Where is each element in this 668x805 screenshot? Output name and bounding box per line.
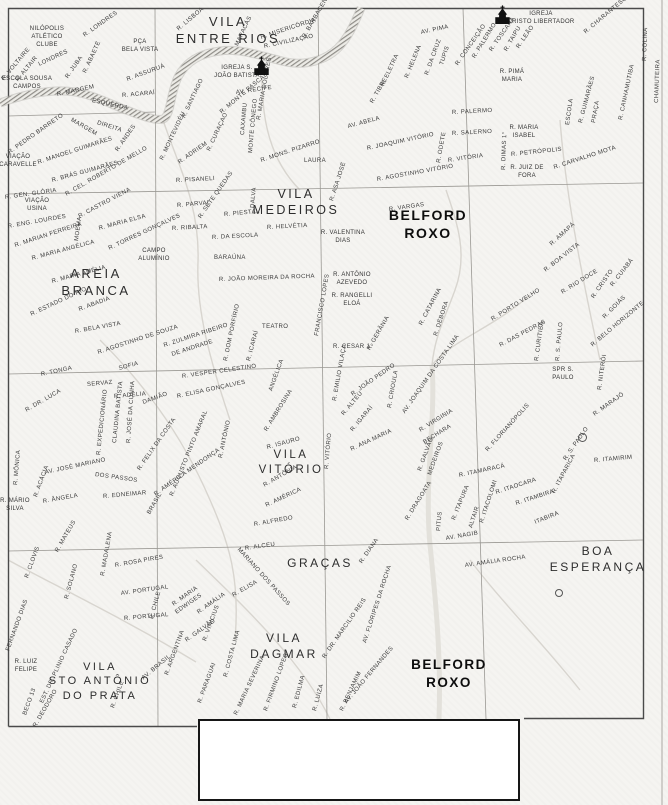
- legend-box: [198, 719, 520, 801]
- street-label: R. PISANELI: [176, 176, 215, 184]
- district-label-boa-esperanca: BOAESPERANÇA: [550, 544, 647, 575]
- map-labels-layer: VILAENTRE RIOSVILAMEDEIROSBELFORDROXOARE…: [0, 0, 668, 805]
- street-label: R. SOLANO: [64, 563, 79, 600]
- street-label: R. COSTA LIMA: [223, 629, 241, 677]
- street-label: R. DR. MARCILIO REIS: [322, 597, 368, 660]
- street-label: R. BOA VISTA: [543, 242, 581, 273]
- place-label: VIAÇÃOUSINA: [25, 197, 49, 213]
- place-label: PÇABELA VISTA: [122, 38, 159, 54]
- street-label: AV. PORTUGAL: [121, 584, 169, 597]
- street-label: R. DA CRUZ: [424, 38, 443, 76]
- street-label: MONTE CÔNEGO: [248, 98, 259, 153]
- district-label-vila-medeiros: VILAMEDEIROS: [253, 186, 340, 219]
- street-label: BECO 13: [22, 688, 37, 717]
- street-label: MARGEM: [70, 117, 98, 137]
- street-label: R. ELISA: [232, 579, 259, 598]
- street-label: R. FLORIANÓPOLIS: [485, 403, 531, 453]
- place-label: CAMPOALUMÍNIO: [138, 247, 169, 263]
- place-label: R. MARIAISABEL: [509, 124, 538, 140]
- street-label: R. ITAPURA: [451, 484, 471, 521]
- street-label: TEATRO: [262, 324, 288, 330]
- street-label: R. BELA VISTA: [74, 321, 121, 335]
- street-label: R. ASSURUÁ: [126, 63, 166, 82]
- place-label: R. RANGELLIELOÁ: [332, 292, 373, 308]
- street-label: R. MARIA ELSA: [98, 214, 146, 232]
- street-label: R. ACARAÍ: [122, 90, 156, 99]
- street-label: R. MATEUS: [54, 519, 77, 553]
- street-label: R. MONTEVIDÉU: [159, 111, 187, 161]
- street-label: R. MADALENA: [100, 531, 114, 576]
- street-label: MARIANO DOS PASSOS: [236, 547, 291, 607]
- street-label: ESCOLA: [565, 98, 575, 125]
- street-label: AV. ABELA: [347, 116, 380, 130]
- street-label: R. TONGA: [40, 365, 73, 378]
- place-label: ESCOLA SOUSACAMPOS: [2, 75, 52, 91]
- street-label: R. HELVÉTIA: [267, 223, 308, 231]
- street-label: R. ITAOCARA: [495, 477, 537, 496]
- place-label: R. ANTÔNIOAZEVEDO: [333, 271, 371, 287]
- street-label: R. CURAÇAO: [206, 112, 229, 152]
- street-label: R. ITAMIRIM: [594, 455, 633, 464]
- street-label: R. JOÃO MOREIRA DA ROCHA: [219, 274, 315, 283]
- place-label: VIAÇÃOCARAVELLE: [0, 153, 37, 169]
- street-label: R. COLINA: [642, 27, 649, 61]
- street-label: R. ROSA PIRES: [114, 554, 164, 568]
- street-label: R. CARVALHO MOTA: [553, 145, 617, 171]
- street-label: CLAUDINA BATISTA: [112, 381, 124, 443]
- street-label: SERVAZ: [87, 380, 113, 388]
- street-label: AV. FLORIPES DA ROCHA: [362, 565, 393, 644]
- place-label: R. JUIZ DEFORA: [510, 164, 543, 180]
- street-label: R. PARAGUAI: [197, 662, 217, 704]
- street-label: R. CANHAMUTIBA: [618, 64, 636, 121]
- street-label: R. ITACOLOMI: [479, 479, 499, 524]
- street-label: R. CHARANTESO: [583, 0, 629, 35]
- street-label: R. EDILMA: [292, 675, 306, 709]
- street-label: PITUS: [436, 511, 444, 531]
- street-label: R. DA ESCOLA: [212, 233, 259, 241]
- street-label: R. ADRIEM: [177, 141, 209, 166]
- street-label: CAXAMBU: [240, 102, 249, 135]
- street-label: R. DR. LUCA: [25, 388, 63, 413]
- street-label: R. MARAJÓ: [592, 392, 625, 418]
- street-label: AV. AMÁLIA ROCHA: [465, 554, 527, 568]
- street-label: R. EMILIO VILAÇA: [332, 344, 348, 402]
- street-label: R. LUIZA: [312, 683, 325, 711]
- street-label: FERNANDO DIAS: [5, 599, 29, 652]
- district-label-belford-roxo-sul: BELFORDROXO: [411, 656, 487, 691]
- street-label: R. AMBROSINA: [263, 389, 294, 433]
- street-label: AV. PIMA: [420, 24, 449, 36]
- place-label: IGREJACRISTO LIBERTADOR: [507, 10, 574, 26]
- street-label: R. HELENA: [404, 44, 423, 79]
- street-label: LAURA: [304, 158, 326, 164]
- street-label: R. CASTRO VIENA: [78, 187, 132, 220]
- street-label: R. CLOVIS: [24, 546, 41, 579]
- district-label-vila-sto-antonio-do-prata: VILASTO ANTÔNIODO PRATA: [49, 660, 151, 703]
- street-label: R. PORTO VELHO: [490, 288, 541, 323]
- street-label: SOFIA: [118, 361, 139, 372]
- street-label: AV. NAGIB: [445, 530, 478, 542]
- place-label: NILÓPOLISATLÉTICOCLUBE: [30, 25, 64, 49]
- landmark-circle: [555, 589, 563, 597]
- street-label: BRASIL: [146, 492, 163, 516]
- street-label: R. EXPEDICIONÁRIO: [96, 389, 109, 455]
- street-label: R. DÉBORA: [433, 300, 450, 337]
- street-label: R. JOSÉ DA CUNHA: [126, 381, 136, 444]
- street-label: R. NITERÓI: [597, 354, 608, 391]
- street-label: R. FELIX DA COSTA: [137, 417, 178, 472]
- street-label: R. ALFREDO: [253, 515, 293, 528]
- street-label: R. JOAQUIM VITÓRIO: [366, 132, 434, 152]
- street-label: DOS PASSOS: [95, 472, 138, 484]
- street-label: R. PETRÓPOLIS: [511, 147, 563, 158]
- street-label: R. CESAR 1°: [333, 344, 373, 350]
- street-label: ANGÉLICA: [268, 358, 285, 392]
- street-label: R. EDNEIMAR: [103, 490, 147, 500]
- street-label: R. ODETE: [436, 131, 447, 163]
- street-label: R. ELETRA: [380, 53, 400, 87]
- street-label: R. ACÁCIA: [33, 465, 50, 498]
- street-label: R. ENG. LOURDES: [7, 214, 66, 230]
- street-label: R. MARGEM: [56, 84, 95, 98]
- street-label: R. DIANA: [359, 537, 381, 564]
- street-label: R. VITÓRIA: [448, 153, 484, 164]
- scan-edge-artifact: [661, 0, 663, 805]
- street-label: R. VITÓRIO: [324, 433, 333, 470]
- place-label: R. MÁRIOSILVA: [0, 497, 30, 513]
- district-label-belford-roxo: BELFORDROXO: [389, 206, 467, 242]
- street-label: MOEMA: [74, 216, 83, 241]
- street-label: R. PALERMO: [452, 108, 493, 116]
- street-label: ITABIRA: [534, 511, 560, 526]
- street-label: R. SALERNO: [452, 129, 493, 137]
- street-label: R. DOM PORFÍRIO: [223, 303, 241, 361]
- street-label: R. ABAETÉ: [82, 40, 102, 74]
- street-label: R. ICARAÍ: [246, 330, 260, 362]
- street-label: LONDRES: [38, 49, 69, 68]
- street-label: R. JUBA: [65, 55, 85, 80]
- street-label: R. PORTUGAL: [124, 612, 169, 622]
- district-label-gracas: GRAÇAS: [287, 556, 353, 572]
- street-label: AV. JOAQUIM DA COSTA LIMA: [402, 334, 461, 415]
- street-label: R. PEDRO BARRETO: [7, 113, 64, 156]
- street-label: R. ALCEU: [245, 542, 276, 552]
- street-label: R. AGOSTINHO VITÓRIO: [376, 164, 454, 183]
- landmark-circle: [578, 433, 587, 442]
- street-label: R. MÔNICA: [13, 450, 22, 486]
- street-label: R. MARIA ANGÉLICA: [31, 239, 95, 262]
- place-label: SPR S.PAULO: [552, 366, 573, 382]
- street-label: R. AMÉRICA: [265, 487, 303, 509]
- street-label: ALTAIR: [468, 506, 481, 529]
- street-label: R. LONDRES: [82, 10, 119, 38]
- street-label: R. S. PAULO: [555, 322, 564, 362]
- street-label: ESQUERDA: [91, 98, 128, 112]
- place-label: R. PIMÁMARIA: [500, 68, 524, 84]
- street-label: R. DRAGOATA: [404, 480, 433, 521]
- street-label: R. MARIA SEVERINA: [233, 655, 266, 717]
- church-icon: [253, 56, 270, 77]
- street-label: R. ELISA GONÇALVES: [176, 379, 246, 399]
- place-label: R. LUIZFELIPE: [15, 658, 38, 674]
- street-label: FRANCISCO LOPES: [314, 273, 331, 336]
- street-label: R. ANA MARIA: [350, 428, 393, 452]
- street-label: R. RIBALTA: [172, 224, 208, 232]
- street-label: R. ITAMARACÁ: [458, 463, 505, 479]
- street-label: R. ITAMBIRA: [515, 489, 555, 507]
- street-label: R. MANOEL GUIMARÃES: [37, 136, 113, 166]
- church-icon: [494, 5, 511, 26]
- place-label: R. VALENTINADIAS: [321, 229, 365, 245]
- street-label: R. AMAPÁ: [549, 222, 576, 248]
- street-label: R. ESTADO DO RIO: [30, 286, 88, 317]
- street-label: R. CRIOULA: [387, 370, 400, 409]
- map-sheet: VILAENTRE RIOSVILAMEDEIROSBELFORDROXOARE…: [0, 0, 668, 805]
- street-label: DIREITA: [96, 120, 123, 134]
- street-label: PRAÇA: [591, 100, 601, 123]
- street-label: R. VESPER CELESTINO: [182, 364, 257, 380]
- street-label: R. IGARAÍ: [350, 405, 375, 433]
- street-label: BARAÚNA: [214, 255, 246, 261]
- street-label: TUPIS: [439, 45, 451, 66]
- street-label: R. ÂNGELA: [42, 493, 78, 505]
- street-label: R. DIMAS 1°: [501, 131, 508, 170]
